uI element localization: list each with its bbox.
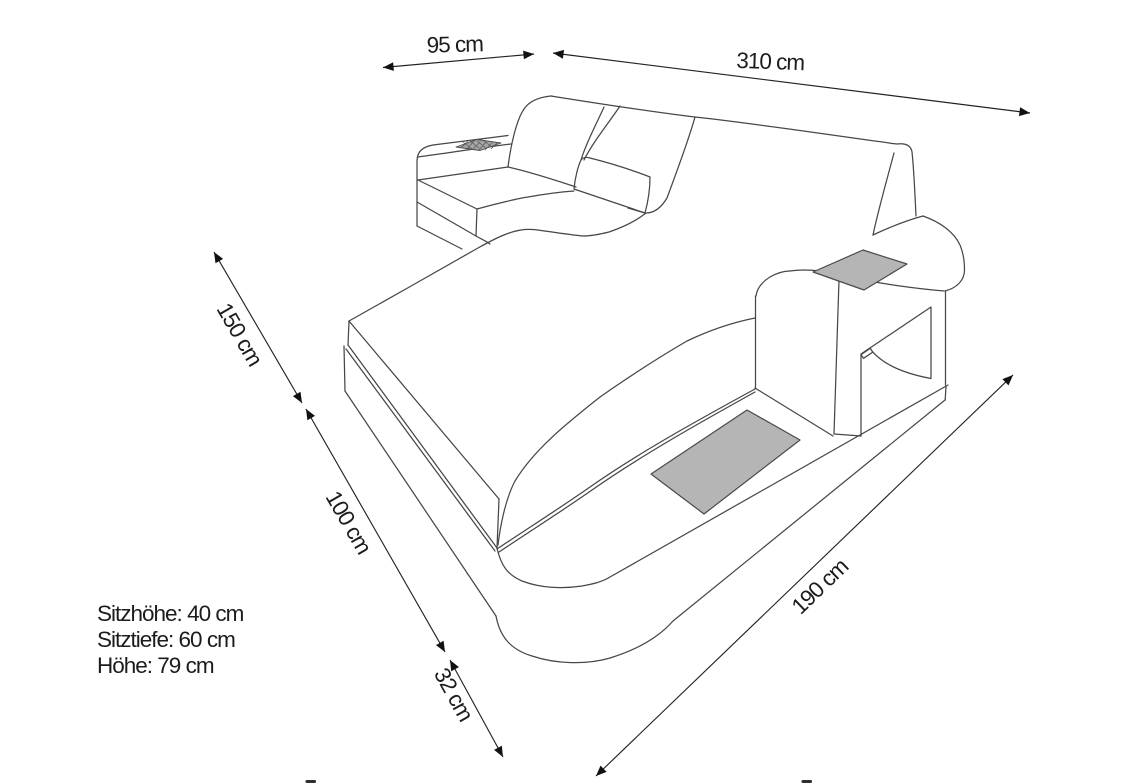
svg-text:95 cm: 95 cm xyxy=(426,31,483,57)
svg-text:32 cm: 32 cm xyxy=(429,664,478,726)
svg-text:Sitzhöhe: 40 cm: Sitzhöhe: 40 cm xyxy=(97,601,244,626)
svg-text:150 cm: 150 cm xyxy=(212,299,268,370)
svg-text:190 cm: 190 cm xyxy=(787,554,853,619)
svg-text:310 cm: 310 cm xyxy=(736,48,805,75)
svg-text:Höhe: 79 cm: Höhe: 79 cm xyxy=(97,653,214,678)
svg-text:100 cm: 100 cm xyxy=(321,487,377,558)
svg-text:Sitztiefe: 60 cm: Sitztiefe: 60 cm xyxy=(97,627,235,652)
